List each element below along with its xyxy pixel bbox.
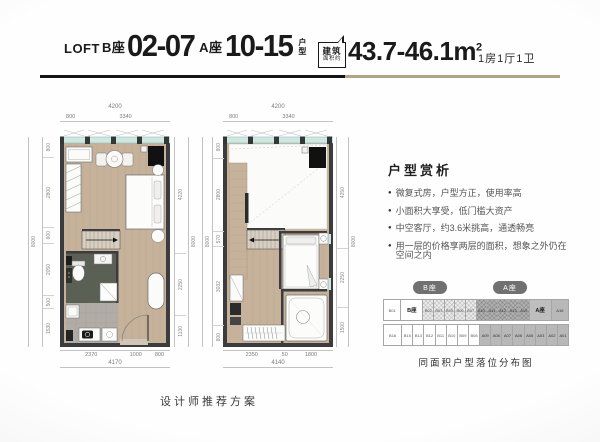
distribution-map: B座 A座 B01B座B02B03B05B06B07A10A11A12A13A1…: [383, 281, 569, 369]
analysis-section: 户型赏析 ● 微复式房，户型方正，使用率高 ● 小面积大享受，低门槛大资产 ● …: [388, 160, 568, 269]
dimension-top-total: 4200: [60, 104, 170, 110]
analysis-title: 户型赏析: [388, 160, 568, 179]
washer: [66, 256, 72, 265]
storage-block: [230, 303, 241, 315]
bullet-icon: ●: [388, 224, 392, 234]
nightstand: [319, 279, 328, 290]
title-a-label: A座: [199, 37, 224, 59]
analysis-bullet: ● 中空客厅，约3.6米挑高，通透畅亮: [388, 224, 568, 234]
analysis-bullets: ● 微复式房，户型方正，使用率高 ● 小面积大享受，低门槛大资产 ● 中空客厅，…: [388, 189, 568, 261]
unit-cell: A座: [529, 299, 552, 321]
unit-cell: A01: [557, 324, 569, 346]
area-badge: 建筑 面积约: [318, 42, 346, 68]
dimension-top-segments: 8003340: [60, 113, 170, 122]
unit-row-top: B01B座B02B03B05B06B07A10A11A12A13A15A座A16: [383, 299, 569, 321]
kitchen: [66, 303, 118, 343]
bathroom: [66, 251, 119, 303]
unit-cell: B01: [383, 299, 401, 321]
building-pills: B座 A座: [383, 281, 569, 294]
building-b-pill: B座: [413, 281, 447, 294]
dimension-right-segments: 422022501130: [174, 137, 186, 347]
walkway: [229, 163, 247, 279]
dining-table: [96, 151, 133, 168]
dimension-bottom-segments: 23701000800: [60, 350, 170, 359]
wardrobe: [66, 164, 81, 212]
dimension-right-outer: 8000: [188, 137, 199, 347]
bathtub: [286, 295, 327, 341]
side-table: [153, 165, 164, 176]
nightstand: [319, 233, 328, 244]
floor-plan-level2: 4200 8003340: [223, 104, 333, 374]
interior-wall: [281, 289, 327, 292]
accent-divider: [40, 75, 560, 78]
dimension-left-segments: 80028005703032800: [212, 137, 224, 347]
distribution-caption: 同面积户型落位分布图: [383, 355, 569, 369]
unit-cell: B座: [400, 299, 423, 321]
floor-plan-level1-drawing: [60, 129, 170, 347]
toilet: [73, 265, 85, 281]
title-suffix: 户 型: [298, 39, 306, 59]
analysis-bullet: ● 微复式房，户型方正，使用率高: [388, 189, 568, 199]
title-a-range: 10-15: [225, 32, 292, 59]
designer-note: 设计师推荐方案: [160, 393, 258, 409]
dimension-left-outer: 8000: [28, 137, 39, 347]
side-table: [152, 230, 165, 243]
sink: [94, 254, 112, 264]
switch-box: [302, 147, 308, 153]
room-config: 1房1厅1卫: [478, 50, 535, 66]
window-truss: [227, 130, 327, 136]
ac-unit: [309, 147, 326, 168]
floor-plan-level2-drawing: [223, 129, 333, 347]
title-prefix: LOFT: [64, 41, 102, 59]
bullet-icon: ●: [388, 207, 392, 217]
dimension-left-segments: 800280060020505001530: [42, 137, 54, 347]
ac-unit: [148, 146, 164, 166]
title-b-range: 02-07: [127, 32, 194, 59]
dimension-right-outer: 8000: [348, 137, 359, 347]
hanger-wardrobe: [243, 325, 285, 341]
flyer-page: LOFT B座 02-07 A座 10-15 户 型 建筑 面积约 43.7-4…: [0, 0, 600, 442]
dimension-bottom-total: 4170: [60, 360, 170, 368]
analysis-bullet: ● 用一层的价格享两层的面积，想象之外仍在空间之内: [388, 242, 568, 261]
title-b-label: B座: [102, 37, 127, 59]
dimension-top-segments: 8003340: [223, 113, 333, 122]
bathtub-capsule: [148, 273, 164, 309]
window-truss: [64, 130, 164, 136]
unit-cell: B16: [383, 324, 402, 346]
building-a-pill: A座: [493, 281, 527, 294]
analysis-bullet: ● 小面积大享受，低门槛大资产: [388, 207, 568, 217]
dimension-top-total: 4200: [223, 104, 333, 110]
unit-row-bottom: B16B15B13B12B11B10B09B08A09A08A07A06A05A…: [383, 324, 569, 346]
bed-sofa: [126, 175, 164, 229]
storage-block: [230, 317, 241, 325]
unit-cell: A16: [551, 299, 569, 321]
tv-panel: [245, 193, 249, 223]
dimension-bottom-segments: 2350501800: [223, 350, 333, 359]
page-title: LOFT B座 02-07 A座 10-15 户 型: [64, 32, 306, 59]
desk: [66, 147, 92, 162]
area-value: 43.7-46.1m2: [348, 36, 482, 67]
dimension-right-segments: 425022501500: [336, 137, 348, 347]
cabinet: [230, 275, 243, 301]
dimension-bottom-total: 4140: [223, 360, 333, 368]
bullet-icon: ●: [388, 242, 392, 252]
floor-plan-level1: 4200 8003340: [60, 104, 170, 374]
stairs: [82, 229, 120, 249]
unit-grid: B01B座B02B03B05B06B07A10A11A12A13A15A座A16…: [383, 299, 569, 346]
bullet-icon: ●: [388, 189, 392, 199]
switch-box: [141, 146, 147, 152]
